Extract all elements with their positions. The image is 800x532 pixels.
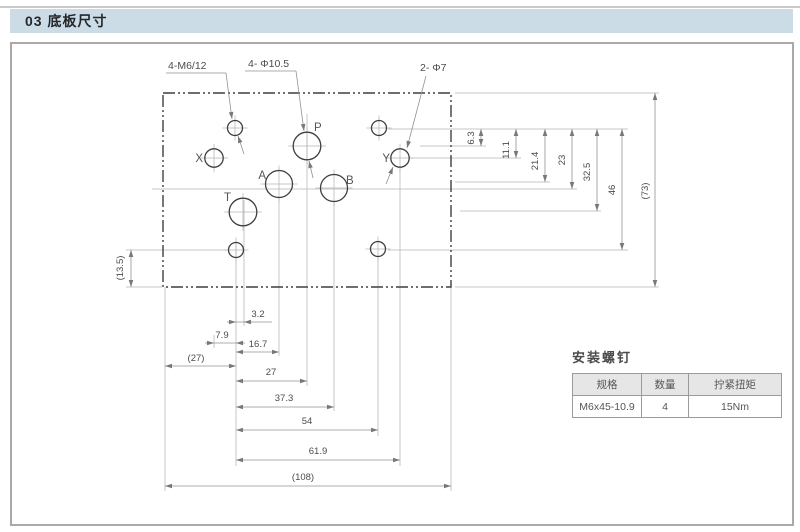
dimension-arrowhead [327,405,334,410]
dimension-arrowhead [236,428,243,433]
dimension-arrowhead [444,484,451,489]
dimension-arrowhead [300,379,307,384]
dimension-arrowhead [165,364,172,369]
datasheet-page: 03 底板尺寸 XYPTAB4-M6/124- Φ10.52- Φ76.311.… [0,0,800,532]
dimension-arrowhead [479,139,484,146]
dimension-arrowhead [129,280,134,287]
dimension-arrowhead [479,129,484,136]
dimension-arrowhead [371,428,378,433]
dimension-arrowhead [393,458,400,463]
leader-arrowhead [236,135,243,143]
dimension-arrowhead [207,341,214,346]
dimension-arrowhead [570,129,575,136]
screw-qty-value: 4 [642,396,689,418]
dimension-arrowhead [244,320,251,325]
port-label-A: A [258,170,266,182]
dimension-arrowhead [620,129,625,136]
screw-torque-value: 15Nm [689,396,782,418]
dimension-value: 16.7 [249,339,268,350]
dimension-value: 32.5 [582,163,593,182]
callout-label: 4- Φ10.5 [248,58,289,70]
dimension-value: 7.9 [215,330,228,341]
dimension-value: 23 [557,155,568,166]
leader-arrowhead [307,160,313,168]
dimension-arrowhead [620,243,625,250]
dimension-arrowhead [514,129,519,136]
leader-arrowhead [388,166,395,174]
leader-line [296,71,304,131]
screw-spec-value: M6x45-10.9 [573,396,642,418]
dimension-value: 54 [302,416,313,427]
dimension-arrowhead [165,484,172,489]
dimension-arrowhead [236,405,243,410]
dimension-value: 21.4 [530,152,541,171]
dimension-arrowhead [570,182,575,189]
dimension-value: 11.1 [501,141,512,159]
dimension-arrowhead [595,204,600,211]
dimension-arrowhead [514,151,519,158]
dimension-value: 6.3 [466,131,477,144]
dimension-value: (108) [292,472,314,483]
screw-table-header-row: 规格 数量 拧紧扭矩 [573,374,782,396]
leader-line [407,76,426,148]
dimension-value: 61.9 [309,446,328,457]
dimension-arrowhead [543,129,548,136]
port-label-Y: Y [382,153,390,165]
screw-table-header-spec: 规格 [573,374,642,396]
dimension-arrowhead [236,350,243,355]
screw-table: 规格 数量 拧紧扭矩 M6x45-10.9 4 15Nm [572,373,782,418]
mounting-screw-block: 安装螺钉 规格 数量 拧紧扭矩 M6x45-10.9 4 15Nm [572,347,782,418]
dimension-value: 3.2 [251,309,264,320]
dimension-arrowhead [595,129,600,136]
dimension-value: (27) [188,353,205,364]
dimension-value: 46 [607,185,618,196]
port-label-T: T [224,192,231,204]
dimension-arrowhead [236,458,243,463]
subplate-dimension-drawing: XYPTAB4-M6/124- Φ10.52- Φ76.311.121.4233… [0,0,800,532]
dimension-value: (13.5) [115,256,126,281]
dimension-arrowhead [229,320,236,325]
screw-table-header-torque: 拧紧扭矩 [689,374,782,396]
port-label-B: B [346,175,354,187]
dimension-value: (73) [640,183,651,200]
dimension-arrowhead [236,379,243,384]
port-label-P: P [314,122,322,134]
leader-arrowhead [405,141,411,149]
dimension-arrowhead [653,280,658,287]
screw-table-data-row: M6x45-10.9 4 15Nm [573,396,782,418]
dimension-arrowhead [543,175,548,182]
screw-table-header-qty: 数量 [642,374,689,396]
dimension-value: 27 [266,367,277,378]
callout-label: 2- Φ7 [420,62,447,74]
dimension-arrowhead [653,93,658,100]
callout-label: 4-M6/12 [168,60,207,72]
dimension-arrowhead [229,364,236,369]
dimension-arrowhead [129,250,134,257]
dimension-arrowhead [272,350,279,355]
screw-table-title: 安装螺钉 [572,347,782,366]
port-label-X: X [195,153,203,165]
dimension-value: 37.3 [275,393,294,404]
dimension-arrowhead [236,341,243,346]
